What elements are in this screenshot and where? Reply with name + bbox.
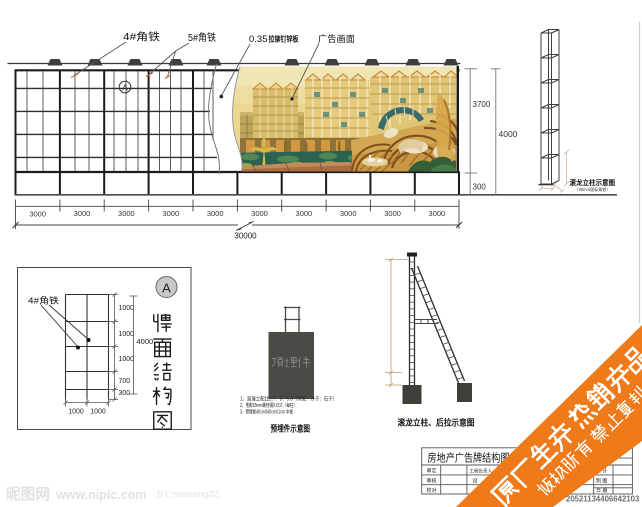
svg-text:4#角铁: 4#角铁 <box>28 296 60 306</box>
svg-text:1000: 1000 <box>68 409 84 416</box>
svg-text:4#角铁: 4#角铁 <box>123 30 161 43</box>
svg-text:www.nipic.com: www.nipic.com <box>55 488 147 502</box>
svg-text:1000: 1000 <box>119 331 135 338</box>
svg-text:3000: 3000 <box>162 209 179 218</box>
svg-text:3000: 3000 <box>74 209 91 218</box>
svg-text:300: 300 <box>119 390 131 397</box>
svg-text:A: A <box>162 281 171 296</box>
svg-text:3700: 3700 <box>473 100 491 109</box>
svg-text:A: A <box>122 83 128 93</box>
svg-text:审定: 审定 <box>427 468 437 475</box>
svg-text:3000: 3000 <box>296 209 313 218</box>
svg-text:300: 300 <box>473 183 487 192</box>
svg-text:2、地脚18mm螺栓钢X15只（每柱）: 2、地脚18mm螺栓钢X15只（每柱） <box>240 402 297 409</box>
svg-text:校对: 校对 <box>427 487 437 494</box>
svg-text:5#角铁: 5#角铁 <box>188 31 216 44</box>
svg-text:3000: 3000 <box>29 210 46 219</box>
svg-text:预埋件示意图: 预埋件示意图 <box>271 424 311 434</box>
svg-text:3000: 3000 <box>251 209 268 218</box>
svg-text:20521134406642103: 20521134406642103 <box>566 495 640 504</box>
svg-text:日 期: 日 期 <box>596 488 607 494</box>
svg-text:拉铆钉锌板: 拉铆钉锌板 <box>269 34 299 44</box>
svg-text:BY;nasnang32: BY;nasnang32 <box>157 489 219 499</box>
svg-text:3、预埋板40cmX40cmX1cm 中板: 3、预埋板40cmX40cmX1cm 中板 <box>240 409 293 416</box>
svg-text:700: 700 <box>119 378 131 385</box>
svg-text:3000: 3000 <box>384 209 401 218</box>
svg-text:3000: 3000 <box>340 209 357 218</box>
svg-text:审核: 审核 <box>427 477 437 484</box>
svg-text:设: 设 <box>473 477 478 484</box>
svg-text:昵图网: 昵图网 <box>6 486 50 503</box>
svg-text:3000: 3000 <box>207 209 224 218</box>
svg-text:3000: 3000 <box>118 209 135 218</box>
svg-text:房地产广告牌结构图: 房地产广告牌结构图 <box>428 451 510 465</box>
svg-text:滚龙立柱示意图: 滚龙立柱示意图 <box>570 178 616 187</box>
svg-text:30000: 30000 <box>234 232 257 241</box>
svg-text:广告画面: 广告画面 <box>318 33 355 44</box>
svg-text:工程负责人: 工程负责人 <box>470 468 493 475</box>
svg-text:（30mm国标角铁）: （30mm国标角铁） <box>575 186 611 193</box>
svg-text:0.35: 0.35 <box>249 34 268 45</box>
svg-text:4000: 4000 <box>137 337 154 346</box>
svg-text:3000: 3000 <box>429 209 446 218</box>
svg-text:4000: 4000 <box>499 129 518 139</box>
svg-text:滚龙立柱、后拉示意图: 滚龙立柱、后拉示意图 <box>398 418 475 428</box>
svg-text:1000: 1000 <box>90 409 106 416</box>
svg-text:1000: 1000 <box>119 356 135 363</box>
svg-text:1000: 1000 <box>119 305 135 312</box>
svg-text:制 图: 制 图 <box>596 477 607 484</box>
svg-text:1、混凝土配比1.7：3：5.3（水泥：沙子：石子）: 1、混凝土配比1.7：3：5.3（水泥：沙子：石子） <box>240 396 337 403</box>
